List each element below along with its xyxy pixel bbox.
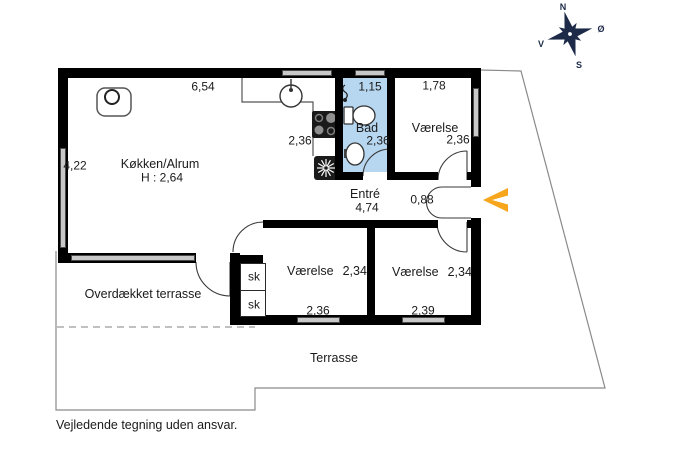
drain-fixture-icon xyxy=(343,85,348,102)
sink-unit-icon xyxy=(97,88,131,116)
window xyxy=(71,255,195,261)
bedroom-right-label: Værelse2,34 xyxy=(392,266,472,280)
wall xyxy=(58,68,481,78)
compass-rose-icon xyxy=(542,6,598,62)
dim-bedroom-top: 1,78 xyxy=(422,79,445,92)
wall xyxy=(387,78,395,180)
window xyxy=(297,317,340,323)
bathroom-label: Bad xyxy=(356,122,378,136)
compass-north-label: N xyxy=(560,2,567,12)
bedroom-left-door-arc xyxy=(233,222,263,252)
wall xyxy=(467,220,471,228)
wall xyxy=(335,172,363,180)
bedroom-right-door-arc xyxy=(437,222,467,252)
bedroom-left-dim: 2,34 xyxy=(343,264,367,278)
dim-bath-top: 1,15 xyxy=(358,80,381,93)
dim-bedroom-right-bottom: 2,39 xyxy=(411,304,434,317)
window xyxy=(355,70,385,76)
floor-plan: 6,54 1,15 1,78 4,22 2,36 2,36 2,36 0,88 … xyxy=(0,0,687,457)
hall-length-label: 4,74 xyxy=(355,201,378,214)
bedroom-left-label: Værelse2,34 xyxy=(287,265,367,279)
bedroom-right-name: Værelse xyxy=(392,265,439,279)
dim-hall-width: 0,88 xyxy=(410,193,433,206)
terrace-label: Terrasse xyxy=(310,352,358,366)
window xyxy=(282,70,332,76)
kitchen-ceiling-label: H : 2,64 xyxy=(141,171,183,184)
compass-west-label: V xyxy=(538,39,544,49)
compass-south-label: S xyxy=(576,60,582,70)
bedroom-left-name: Værelse xyxy=(287,264,334,278)
wall xyxy=(390,172,438,180)
dim-kitchen-left: 4,22 xyxy=(63,159,86,172)
wall xyxy=(263,220,438,228)
bedroom-right-dim: 2,34 xyxy=(448,265,472,279)
washbasin-icon xyxy=(344,143,364,165)
wall xyxy=(335,78,343,180)
dim-kitchen-top: 6,54 xyxy=(191,80,214,93)
window xyxy=(402,317,445,323)
dim-bath: 2,36 xyxy=(366,134,389,147)
bedroom-top-door-arc xyxy=(438,151,467,180)
round-sink-icon xyxy=(280,79,302,107)
dim-kitchen-right: 2,36 xyxy=(288,134,311,147)
window xyxy=(473,88,479,137)
wall xyxy=(467,172,471,180)
closet-divider xyxy=(241,290,265,291)
compass-east-label: Ø xyxy=(597,24,604,34)
wall xyxy=(471,218,481,325)
dim-bedroom-left-bottom: 2,36 xyxy=(306,304,329,317)
closet-lower-label: sk xyxy=(248,298,260,311)
entrance-arrow-icon xyxy=(483,188,508,212)
closet-upper-label: sk xyxy=(248,270,260,283)
covered-terrace-label: Overdækket terrasse xyxy=(85,288,202,302)
bedroom-top-label: Værelse xyxy=(412,122,459,136)
disclaimer-text: Vejledende tegning uden ansvar. xyxy=(56,418,237,432)
bathroom-door-arc xyxy=(363,149,390,176)
wall xyxy=(367,220,375,325)
